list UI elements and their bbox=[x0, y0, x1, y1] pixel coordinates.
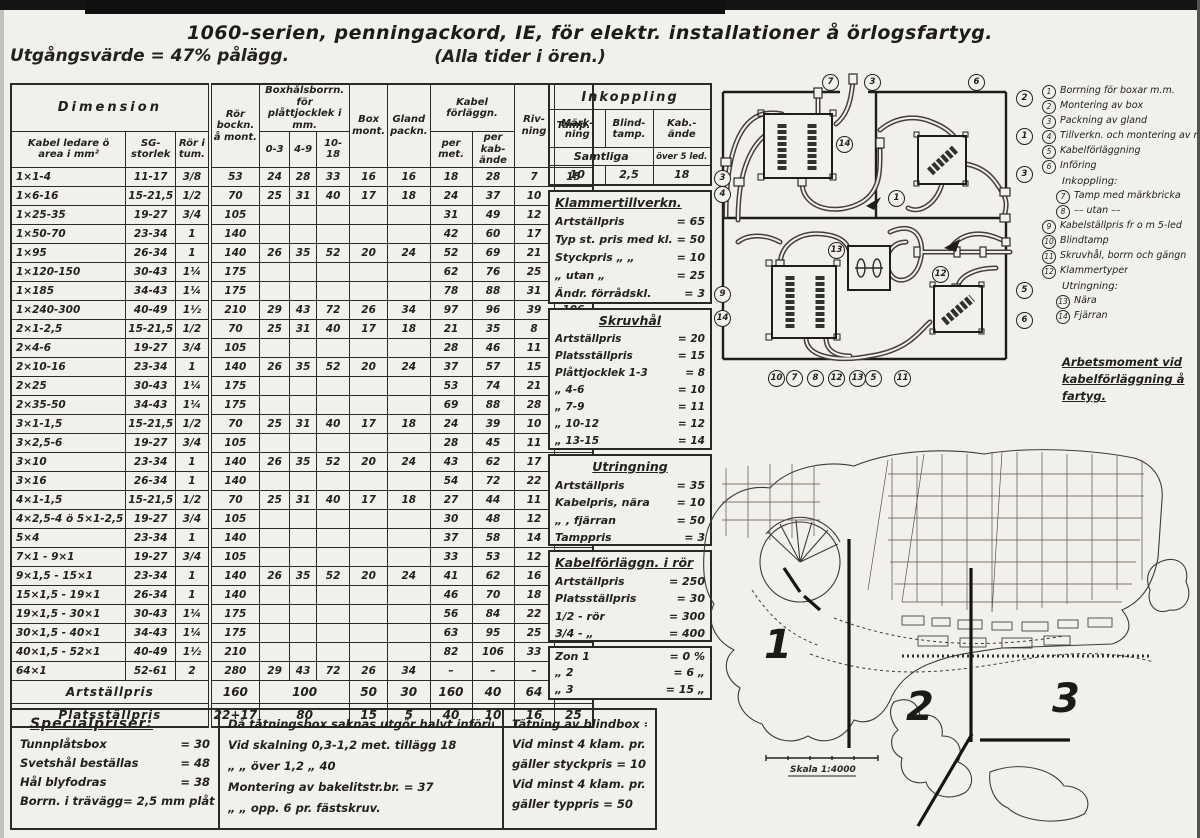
item-label: 3/4 - „ bbox=[555, 625, 594, 642]
cell: 53 bbox=[210, 167, 260, 186]
inkoppling-val-2: 2,5 bbox=[605, 166, 653, 185]
legend-number-badge: 14 bbox=[1056, 310, 1070, 324]
main-table-rows: 1×1-411-173/853242833161618287151×6-1615… bbox=[11, 167, 593, 680]
cell: 140 bbox=[210, 224, 260, 243]
inkoppling-table: Inkoppling Märk-ning Blind-tamp. Kab.-än… bbox=[548, 83, 712, 186]
cell: 46 bbox=[430, 585, 472, 604]
cell: 37 bbox=[472, 186, 514, 205]
item-label: 1/2 - rör bbox=[555, 608, 605, 626]
cell: 210 bbox=[210, 642, 260, 661]
cell: 41 bbox=[430, 566, 472, 585]
cell bbox=[317, 623, 350, 642]
item-label: Artställpris bbox=[555, 477, 625, 495]
sealing-notes-box: Då tätningsbox saknas utgör halvt införi… bbox=[220, 710, 504, 828]
price-section: Kabelförläggn. i rörArtställpris= 250Pla… bbox=[548, 550, 712, 642]
cell: 1/2 bbox=[176, 414, 210, 433]
cell: 15-21,5 bbox=[126, 414, 176, 433]
cell: 26 bbox=[350, 300, 388, 319]
cell: 26 bbox=[260, 452, 290, 471]
row-label: 9×1,5 - 15×1 bbox=[11, 566, 126, 585]
header-boxhalsborrn: Boxhålsborrn. för plåttjocklek i mm. bbox=[260, 84, 350, 132]
table-row: 4×2,5-4 ö 5×1-2,519-273/410530481215 bbox=[11, 509, 593, 528]
summary-cell: 40 bbox=[472, 680, 514, 703]
row-label: 2×10-16 bbox=[11, 357, 126, 376]
summary-cell: 160 bbox=[430, 680, 472, 703]
cell: 95 bbox=[472, 623, 514, 642]
cell: 34-43 bbox=[126, 281, 176, 300]
item-value: = 25 bbox=[677, 267, 705, 285]
cell: 63 bbox=[430, 623, 472, 642]
summary-mont: 160 bbox=[210, 680, 260, 703]
cell: 23-34 bbox=[126, 452, 176, 471]
cell: 40-49 bbox=[126, 642, 176, 661]
cell: 23-34 bbox=[126, 566, 176, 585]
inkoppling-val-3: 18 bbox=[653, 166, 711, 185]
special-prices-items: Tunnplåtsbox= 30Svetshål beställas= 48Hå… bbox=[20, 735, 210, 811]
section-item: „ 7-9= 11 bbox=[555, 399, 705, 416]
cell bbox=[290, 433, 317, 452]
item-label: „ 3 bbox=[555, 682, 574, 699]
legend-item: 9Kabelställpris fr o m 5-led bbox=[1042, 219, 1198, 234]
legend-items: 1Borrning för boxar m.m.2Montering av bo… bbox=[1042, 84, 1198, 324]
cell: 15-21,5 bbox=[126, 490, 176, 509]
diagram-callout: 14 bbox=[836, 136, 853, 153]
note-line: Då tätningsbox saknas utgör halvt införi… bbox=[228, 714, 494, 735]
row-label: 2×35-50 bbox=[11, 395, 126, 414]
cell: 49 bbox=[472, 205, 514, 224]
legend-item: 4Tillverkn. och montering av rör bbox=[1042, 129, 1198, 144]
diagram-callout: 4 bbox=[714, 186, 731, 203]
cell: 1 bbox=[176, 452, 210, 471]
legend-item: 1Borrning för boxar m.m. bbox=[1042, 84, 1198, 99]
cell: 19-27 bbox=[126, 205, 176, 224]
section-title: Kabelförläggn. i rör bbox=[555, 553, 705, 573]
item-label: Hål blyfodras bbox=[20, 773, 106, 792]
legend-item: 8–– utan –– bbox=[1042, 204, 1198, 219]
table-row: 5×423-34114037581416 bbox=[11, 528, 593, 547]
row-label: 1×50-70 bbox=[11, 224, 126, 243]
cell bbox=[388, 509, 430, 528]
inkoppling-title: Inkoppling bbox=[549, 84, 711, 110]
row-label: 5×4 bbox=[11, 528, 126, 547]
cell: 74 bbox=[472, 376, 514, 395]
cell bbox=[317, 585, 350, 604]
legend-item: 11Skruvhål, borrn och gängn bbox=[1042, 249, 1198, 264]
cell bbox=[317, 376, 350, 395]
row-label: 1×25-35 bbox=[11, 205, 126, 224]
item-label: Tamppris bbox=[555, 529, 612, 546]
inkoppling-col-blindtamp: Blind-tamp. bbox=[605, 110, 653, 148]
table-row: 3×1-1,515-21,51/270253140171824391015 bbox=[11, 414, 593, 433]
cell: 58 bbox=[472, 528, 514, 547]
cell: 31 bbox=[290, 319, 317, 338]
section-item: Zon 1= 0 % bbox=[555, 649, 705, 666]
item-label: „ , fjärran bbox=[555, 512, 616, 530]
row-label: 1×120-150 bbox=[11, 262, 126, 281]
cell: 23-34 bbox=[126, 528, 176, 547]
legend-subheader: Utringning: bbox=[1042, 279, 1198, 294]
cell: 28 bbox=[430, 433, 472, 452]
legend-label: Skruvhål, borrn och gängn bbox=[1060, 249, 1186, 264]
section-item: „ 13-15= 14 bbox=[555, 433, 705, 450]
cell: 2 bbox=[176, 661, 210, 680]
cell: 1/2 bbox=[176, 186, 210, 205]
row-label: 4×2,5-4 ö 5×1-2,5 bbox=[11, 509, 126, 528]
item-value: = 20 bbox=[678, 331, 705, 348]
item-label: Ändr. förrådskl. bbox=[555, 285, 651, 303]
cell: 1 bbox=[176, 224, 210, 243]
legend-label: Blindtamp bbox=[1060, 234, 1109, 249]
cell bbox=[350, 604, 388, 623]
cell: 1¼ bbox=[176, 262, 210, 281]
diagram-callout: 6 bbox=[1016, 312, 1033, 329]
legend-number-badge: 2 bbox=[1042, 100, 1056, 114]
cell: 3/4 bbox=[176, 433, 210, 452]
inkoppling-over5led: över 5 led. bbox=[653, 148, 711, 166]
legend-label: Borrning för boxar m.m. bbox=[1060, 84, 1175, 99]
legend-item: 5Kabelförläggning bbox=[1042, 144, 1198, 159]
cell: 43 bbox=[290, 661, 317, 680]
cell bbox=[350, 395, 388, 414]
cell bbox=[350, 224, 388, 243]
legend-number-badge: 12 bbox=[1042, 265, 1056, 279]
cell: 140 bbox=[210, 471, 260, 490]
cell: 1½ bbox=[176, 642, 210, 661]
cell: 40 bbox=[317, 490, 350, 509]
cell bbox=[260, 262, 290, 281]
wiring-diagram: 7362131413491413125610781213511 bbox=[718, 70, 1036, 400]
section-item: „ 10-12= 12 bbox=[555, 416, 705, 433]
cell: 34 bbox=[388, 661, 430, 680]
cell: 52 bbox=[317, 566, 350, 585]
cell: 105 bbox=[210, 433, 260, 452]
item-label: „ 13-15 bbox=[555, 433, 599, 450]
table-row: 1×18534-431¼17578883185 bbox=[11, 281, 593, 300]
section-item: 1/2 - rör= 300 bbox=[555, 608, 705, 626]
diagram-callout: 13 bbox=[828, 242, 845, 259]
item-value: = 10 bbox=[677, 249, 705, 267]
summary-label: Artställpris bbox=[11, 680, 210, 703]
cell bbox=[290, 547, 317, 566]
cell bbox=[388, 604, 430, 623]
row-label: 2×1-2,5 bbox=[11, 319, 126, 338]
special-price-item: Tunnplåtsbox= 30 bbox=[20, 735, 210, 754]
summary-cell: 30 bbox=[388, 680, 430, 703]
cell bbox=[317, 262, 350, 281]
cell: 25 bbox=[260, 319, 290, 338]
wiring-diagram-svg bbox=[718, 70, 1036, 400]
cell: 25 bbox=[260, 186, 290, 205]
cell: 24 bbox=[388, 357, 430, 376]
cell: 46 bbox=[472, 338, 514, 357]
cell: 105 bbox=[210, 205, 260, 224]
cell: 280 bbox=[210, 661, 260, 680]
cell bbox=[260, 509, 290, 528]
cell bbox=[388, 262, 430, 281]
cell: 30 bbox=[430, 509, 472, 528]
cell: 3/8 bbox=[176, 167, 210, 186]
row-label: 3×16 bbox=[11, 471, 126, 490]
header-box-mont: Box mont. bbox=[350, 84, 388, 167]
legend-label: Fjärran bbox=[1074, 309, 1108, 324]
cell bbox=[317, 281, 350, 300]
cell bbox=[290, 623, 317, 642]
cell: 1 bbox=[176, 243, 210, 262]
piecework-rate-table: Dimension Rör bockn. å mont. Boxhålsborr… bbox=[10, 83, 594, 728]
cell: 26-34 bbox=[126, 243, 176, 262]
row-label: 1×185 bbox=[11, 281, 126, 300]
item-label: Tunnplåtsbox bbox=[20, 735, 107, 754]
section-item: Ändr. förrådskl.= 3 bbox=[555, 285, 705, 303]
table-row: 7×1 - 9×119-273/410533531215 bbox=[11, 547, 593, 566]
diagram-callout: 3 bbox=[714, 170, 731, 187]
cell: 105 bbox=[210, 338, 260, 357]
legend-number-badge: 10 bbox=[1042, 235, 1056, 249]
cell: 105 bbox=[210, 509, 260, 528]
cell bbox=[317, 604, 350, 623]
cell: 40 bbox=[317, 186, 350, 205]
note-line: Vid minst 4 klam. pr. typ bbox=[512, 734, 647, 754]
cell bbox=[350, 509, 388, 528]
cell: 48 bbox=[472, 509, 514, 528]
cell bbox=[388, 623, 430, 642]
cell: 140 bbox=[210, 357, 260, 376]
cell bbox=[260, 395, 290, 414]
cell: 52-61 bbox=[126, 661, 176, 680]
row-label: 3×2,5-6 bbox=[11, 433, 126, 452]
table-row: 3×2,5-619-273/410528451115 bbox=[11, 433, 593, 452]
row-label: 15×1,5 - 19×1 bbox=[11, 585, 126, 604]
table-row: 2×10-1623-341140263552202437571519 bbox=[11, 357, 593, 376]
note-line: „ „ över 1,2 „ 40 bbox=[228, 756, 494, 777]
table-row: 30×1,5 - 40×134-431¼17563952515 bbox=[11, 623, 593, 642]
summary-cell: 50 bbox=[350, 680, 388, 703]
waterfront-buildings bbox=[902, 616, 1112, 648]
cell: 24 bbox=[388, 452, 430, 471]
cell: 3/4 bbox=[176, 547, 210, 566]
table-row: 1×50-7023-34114042601738 bbox=[11, 224, 593, 243]
cell: 37 bbox=[430, 528, 472, 547]
note-line: Vid skalning 0,3-1,2 met. tillägg 18 bbox=[228, 735, 494, 756]
table-row: 1×9526-341140263552202452692150 bbox=[11, 243, 593, 262]
table-row: 3×1023-341140263552202443621718 bbox=[11, 452, 593, 471]
cell: 140 bbox=[210, 528, 260, 547]
legend-label: Klammertyper bbox=[1060, 264, 1128, 279]
cell: 175 bbox=[210, 395, 260, 414]
cell bbox=[388, 471, 430, 490]
section-item: Styckpris „ „= 10 bbox=[555, 249, 705, 267]
legend-note-line: fartyg. bbox=[1062, 388, 1198, 405]
blindbox-notes-box: Tätning av blindbox = 10Vid minst 4 klam… bbox=[504, 710, 655, 828]
cell: 76 bbox=[472, 262, 514, 281]
cell: 70 bbox=[210, 490, 260, 509]
cell: 35 bbox=[290, 566, 317, 585]
legend-item: 6Införing bbox=[1042, 159, 1198, 174]
item-value: = 48 bbox=[180, 754, 210, 773]
scanned-document-photo: 1060-serien, penningackord, IE, för elek… bbox=[0, 0, 1200, 838]
cell: 175 bbox=[210, 376, 260, 395]
special-price-item: Svetshål beställas= 48 bbox=[20, 754, 210, 773]
item-label: Platsställpris bbox=[555, 590, 636, 608]
cell: 21 bbox=[430, 319, 472, 338]
cell: 17 bbox=[350, 186, 388, 205]
cell: 70 bbox=[210, 186, 260, 205]
photo-top-border-segment bbox=[85, 0, 725, 14]
section-item: „ 4-6= 10 bbox=[555, 382, 705, 399]
legend-number-badge: 5 bbox=[1042, 145, 1056, 159]
cell: 140 bbox=[210, 243, 260, 262]
cell: 26 bbox=[260, 243, 290, 262]
cell: 20 bbox=[350, 357, 388, 376]
header-kabelforlaggn: Kabel förläggn. bbox=[430, 84, 514, 132]
table-row: 64×152-6122802943722634–––15 bbox=[11, 661, 593, 680]
cell: 84 bbox=[472, 604, 514, 623]
cell: 35 bbox=[290, 357, 317, 376]
cell: 40-49 bbox=[126, 300, 176, 319]
cell bbox=[290, 509, 317, 528]
cell bbox=[350, 281, 388, 300]
cell: 25 bbox=[260, 414, 290, 433]
legend-note-line: Arbetsmoment vid bbox=[1062, 354, 1198, 371]
cell bbox=[388, 395, 430, 414]
cell: 88 bbox=[472, 281, 514, 300]
cell: 15-21,5 bbox=[126, 319, 176, 338]
header-per-kabande: per kab-ände bbox=[472, 132, 514, 168]
cell: 1¼ bbox=[176, 623, 210, 642]
diagram-callout: 6 bbox=[968, 74, 985, 91]
diagram-callout: 11 bbox=[894, 370, 911, 387]
map-scale-label: Skala 1:4000 bbox=[790, 765, 856, 775]
cell: 52 bbox=[430, 243, 472, 262]
cell bbox=[260, 471, 290, 490]
row-label: 2×25 bbox=[11, 376, 126, 395]
diagram-callout: 5 bbox=[1016, 282, 1033, 299]
legend-number-badge: 6 bbox=[1042, 160, 1056, 174]
cell: 19-27 bbox=[126, 547, 176, 566]
document-subtitle: (Alla tider i ören.) bbox=[330, 47, 710, 67]
diagram-callout: 13 bbox=[849, 370, 866, 387]
item-label: Kabelpris, nära bbox=[555, 494, 650, 512]
section-item: „ utan „= 25 bbox=[555, 267, 705, 285]
cell: 43 bbox=[430, 452, 472, 471]
section-item: Artställpris= 20 bbox=[555, 331, 705, 348]
diagram-callout: 1 bbox=[888, 190, 905, 207]
row-label: 19×1,5 - 30×1 bbox=[11, 604, 126, 623]
cell: 1/2 bbox=[176, 319, 210, 338]
cell: 44 bbox=[472, 490, 514, 509]
cell: 19-27 bbox=[126, 338, 176, 357]
cell: 15-21,5 bbox=[126, 186, 176, 205]
row-label: 1×240-300 bbox=[11, 300, 126, 319]
legend-number-badge: 7 bbox=[1056, 190, 1070, 204]
cell bbox=[260, 604, 290, 623]
legend-item: 2Montering av box bbox=[1042, 99, 1198, 114]
direction-arrows bbox=[866, 197, 960, 252]
cell: 62 bbox=[430, 262, 472, 281]
cell: 31 bbox=[290, 490, 317, 509]
cell: 72 bbox=[472, 471, 514, 490]
table-row: 1×120-15030-431¼17562762563 bbox=[11, 262, 593, 281]
cell: 60 bbox=[472, 224, 514, 243]
cell: 70 bbox=[210, 319, 260, 338]
item-label: Plåttjocklek 1-3 bbox=[555, 365, 648, 382]
cell bbox=[350, 471, 388, 490]
legend-item: 3Packning av gland bbox=[1042, 114, 1198, 129]
cell: 105 bbox=[210, 547, 260, 566]
cell bbox=[388, 642, 430, 661]
item-label: Artställpris bbox=[555, 331, 621, 348]
cell bbox=[317, 509, 350, 528]
item-label: „ 2 bbox=[555, 665, 574, 682]
header-ror-tum: Rör i tum. bbox=[176, 132, 210, 168]
cell: 3/4 bbox=[176, 338, 210, 357]
section-title: Utringning bbox=[555, 457, 705, 477]
price-section: SkruvhålArtställpris= 20Platsställpris= … bbox=[548, 308, 712, 450]
cell: 69 bbox=[472, 243, 514, 262]
diagram-callout: 5 bbox=[865, 370, 882, 387]
item-label: Styckpris „ „ bbox=[555, 249, 635, 267]
section-item: Platsställpris= 30 bbox=[555, 590, 705, 608]
table-row: 9×1,5 - 15×123-341140263552202441621615 bbox=[11, 566, 593, 585]
diagram-callout: 7 bbox=[822, 74, 839, 91]
section-item: Artställpris= 250 bbox=[555, 573, 705, 591]
cell bbox=[317, 205, 350, 224]
cell: 26 bbox=[260, 357, 290, 376]
cell bbox=[290, 471, 317, 490]
cell bbox=[350, 642, 388, 661]
legend-label: Kabelförläggning bbox=[1060, 144, 1141, 159]
cell bbox=[317, 433, 350, 452]
cell: 97 bbox=[430, 300, 472, 319]
cell: 40 bbox=[317, 414, 350, 433]
cell: 78 bbox=[430, 281, 472, 300]
diagram-callout: 3 bbox=[1016, 166, 1033, 183]
cell: 1 bbox=[176, 357, 210, 376]
item-value: = 30 bbox=[180, 735, 210, 754]
cell bbox=[350, 433, 388, 452]
cell: 1 bbox=[176, 585, 210, 604]
cell: 1 bbox=[176, 471, 210, 490]
cell bbox=[317, 224, 350, 243]
cell: 17 bbox=[350, 490, 388, 509]
cell bbox=[388, 338, 430, 357]
cell: 31 bbox=[290, 186, 317, 205]
document-title: 1060-serien, penningackord, IE, för elek… bbox=[150, 22, 1030, 44]
item-label: „ 10-12 bbox=[555, 416, 599, 433]
row-label: 7×1 - 9×1 bbox=[11, 547, 126, 566]
item-label: Svetshål beställas bbox=[20, 754, 138, 773]
cell: 16 bbox=[388, 167, 430, 186]
cell bbox=[317, 471, 350, 490]
special-price-item: Hål blyfodras= 38 bbox=[20, 773, 210, 792]
cell: 18 bbox=[430, 167, 472, 186]
cell: 210 bbox=[210, 300, 260, 319]
cell: 45 bbox=[472, 433, 514, 452]
diagram-callout: 12 bbox=[828, 370, 845, 387]
legend-number-badge: 8 bbox=[1056, 205, 1070, 219]
item-label: „ utan „ bbox=[555, 267, 605, 285]
cell: 140 bbox=[210, 566, 260, 585]
cell bbox=[290, 528, 317, 547]
cell: 56 bbox=[430, 604, 472, 623]
cell: 1 bbox=[176, 528, 210, 547]
cell bbox=[260, 433, 290, 452]
work-step-legend: 1Borrning för boxar m.m.2Montering av bo… bbox=[1042, 84, 1198, 405]
row-label: 2×4-6 bbox=[11, 338, 126, 357]
cell bbox=[350, 338, 388, 357]
cell bbox=[350, 262, 388, 281]
special-prices-title: Specialpriser: bbox=[30, 716, 210, 732]
